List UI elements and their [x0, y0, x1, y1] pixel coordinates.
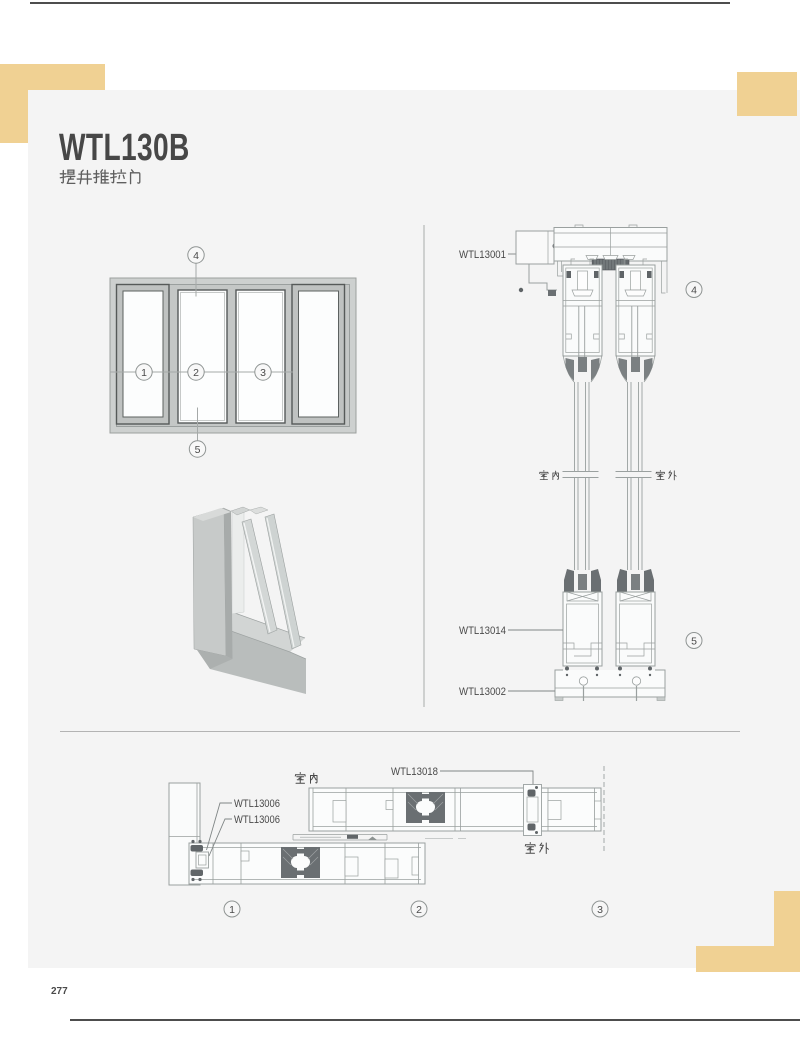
svg-text:1: 1 — [229, 904, 235, 916]
svg-text:4: 4 — [691, 285, 697, 297]
svg-text:WTL13014: WTL13014 — [459, 625, 506, 637]
svg-text:WTL13018: WTL13018 — [391, 766, 438, 778]
svg-text:4: 4 — [193, 250, 199, 262]
svg-text:3: 3 — [260, 367, 266, 379]
svg-text:WTL13006: WTL13006 — [234, 814, 280, 826]
svg-text:WTL13001: WTL13001 — [459, 249, 506, 261]
svg-text:WTL13006: WTL13006 — [234, 798, 280, 810]
svg-text:2: 2 — [193, 367, 199, 379]
svg-text:1: 1 — [141, 367, 147, 379]
svg-text:WTL13002: WTL13002 — [459, 686, 506, 698]
svg-text:5: 5 — [691, 636, 697, 648]
svg-text:2: 2 — [416, 904, 422, 916]
svg-text:3: 3 — [597, 904, 603, 916]
svg-text:5: 5 — [195, 444, 201, 456]
